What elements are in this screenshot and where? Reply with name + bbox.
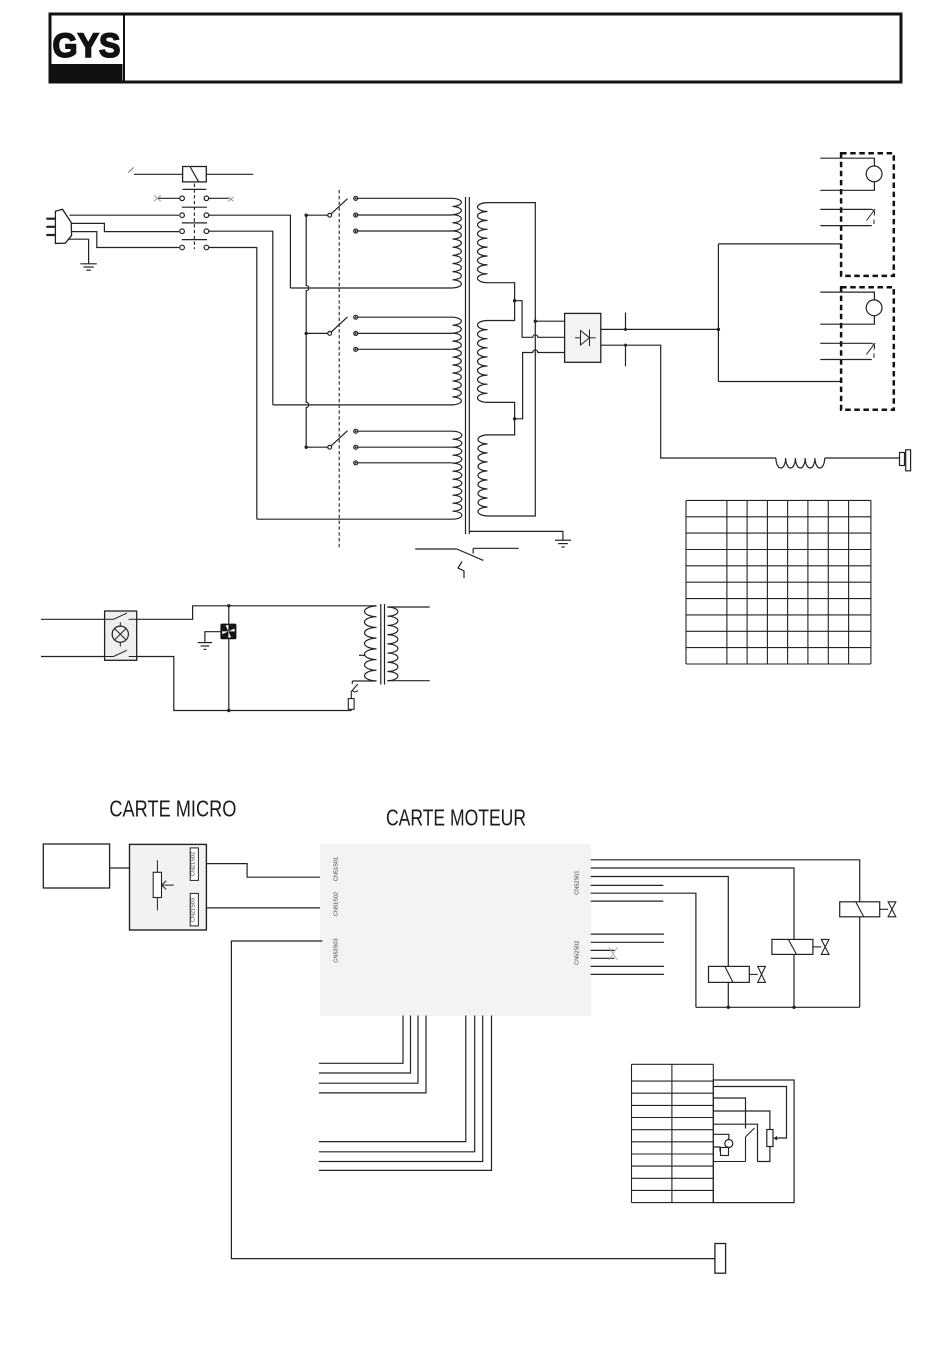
svg-text:GYS: GYS [53, 27, 121, 65]
svg-text:CN52S01: CN52S01 [575, 870, 581, 894]
svg-text:CN21S02: CN21S02 [191, 852, 197, 876]
svg-text:CARTE MICRO: CARTE MICRO [109, 796, 236, 822]
svg-text:CN21S03: CN21S03 [191, 898, 197, 922]
svg-text:CN53S03: CN53S03 [334, 938, 340, 962]
svg-text:CN52S02: CN52S02 [575, 941, 581, 965]
svg-text:CN51S01: CN51S01 [334, 857, 340, 881]
svg-text:CN51S02: CN51S02 [334, 892, 340, 916]
svg-text:CARTE MOTEUR: CARTE MOTEUR [386, 805, 526, 831]
